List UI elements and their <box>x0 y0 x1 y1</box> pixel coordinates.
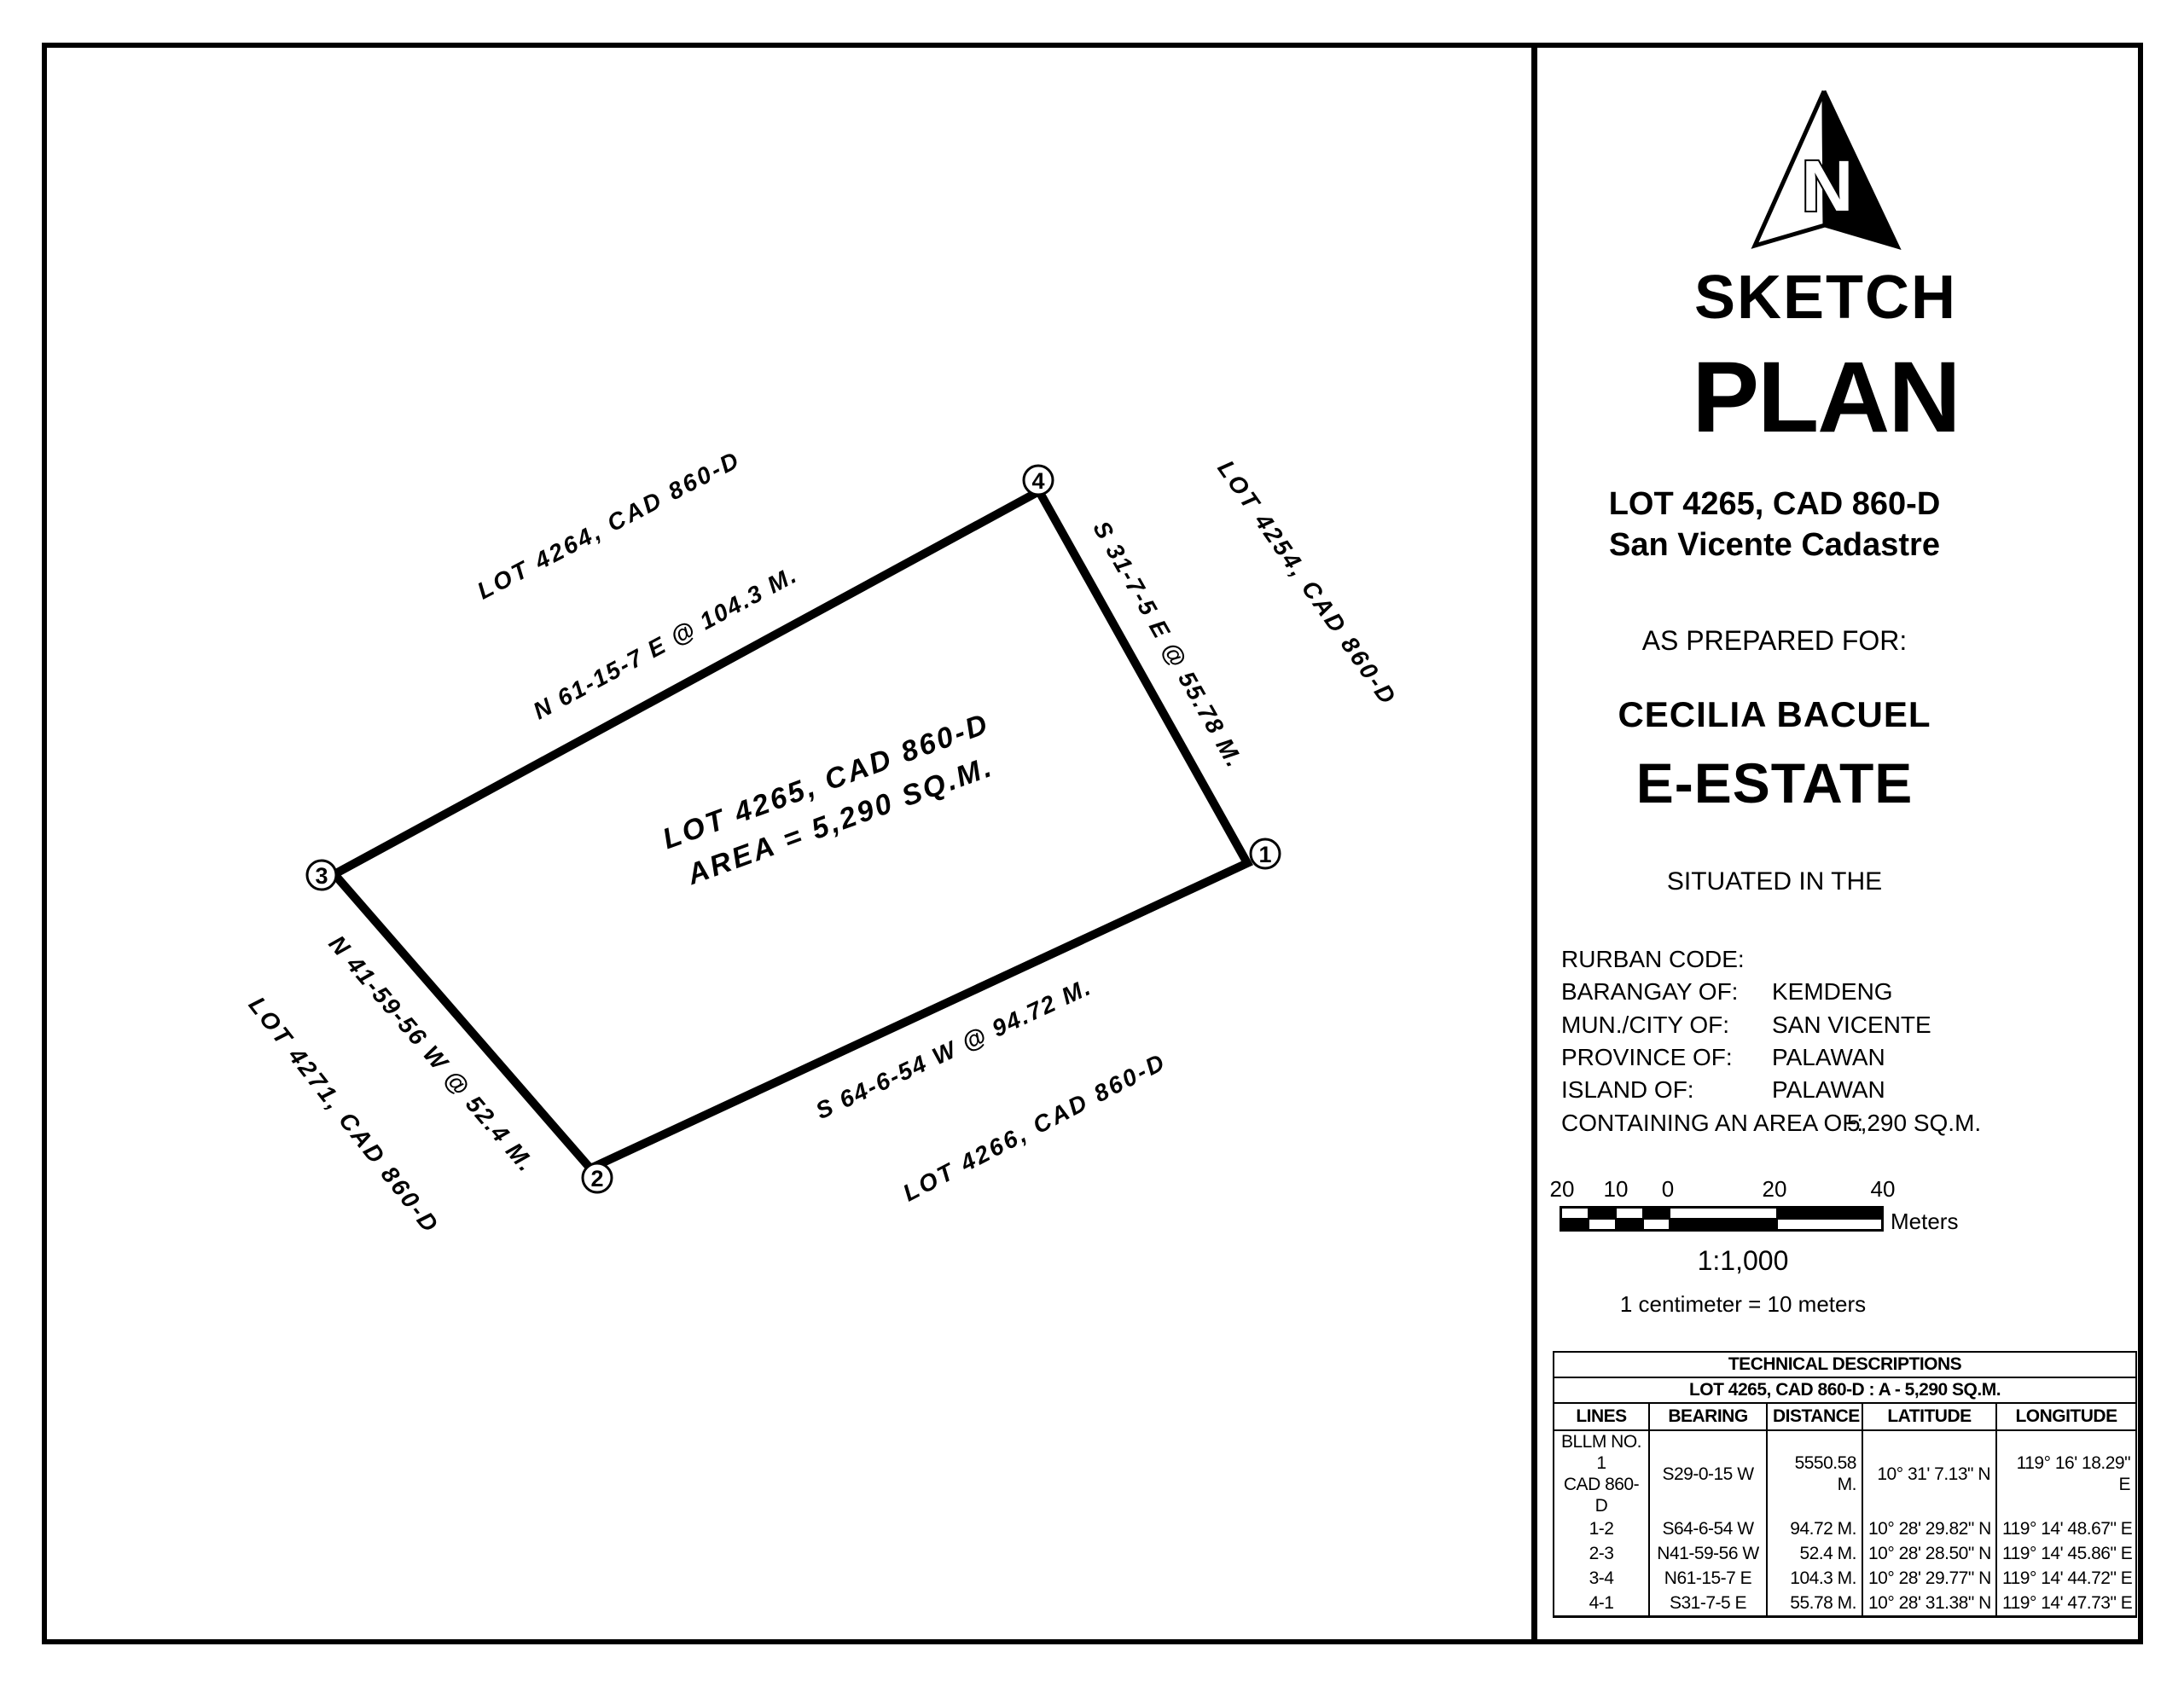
col-header-longitude: LONGITUDE <box>1996 1403 2136 1430</box>
table-row: 2-3 N41-59-56 W 52.4 M. 10° 28' 28.50" N… <box>1554 1541 2136 1566</box>
scale-bar <box>1560 1206 1884 1232</box>
scale-equivalence: 1 centimeter = 10 meters <box>1620 1291 1866 1318</box>
col-header-bearing: BEARING <box>1649 1403 1767 1430</box>
corner-marker-1: 1 <box>1251 839 1280 868</box>
corner-marker-2: 2 <box>583 1163 612 1192</box>
province-label: PROVINCE OF: <box>1561 1041 1733 1074</box>
scale-bar-bottom-row <box>1561 1219 1882 1230</box>
col-header-distance: DISTANCE <box>1767 1403 1862 1430</box>
north-arrow-icon: N <box>1664 77 2005 273</box>
corner-marker-4: 4 <box>1024 466 1053 495</box>
situated-label: SITUATED IN THE <box>1667 867 1882 896</box>
cell-lines: 2-3 <box>1554 1541 1649 1566</box>
cell-distance: 5550.58 M. <box>1767 1430 1862 1516</box>
cell-lines: 1-2 <box>1554 1516 1649 1541</box>
scale-tick-10: 10 <box>1604 1176 1629 1203</box>
island-value: PALAWAN <box>1772 1074 1885 1106</box>
cell-bearing: S64-6-54 W <box>1649 1516 1767 1541</box>
municipality-label: MUN./CITY OF: <box>1561 1009 1729 1041</box>
municipality-value: SAN VICENTE <box>1772 1009 1931 1041</box>
title-cadastre: San Vicente Cadastre <box>1609 527 1940 564</box>
scale-tick-40: 40 <box>1871 1176 1896 1203</box>
cell-bearing: N41-59-56 W <box>1649 1541 1767 1566</box>
client-name: CECILIA BACUEL <box>1618 694 1931 735</box>
prepared-for-label: AS PREPARED FOR: <box>1642 625 1908 657</box>
island-label: ISLAND OF: <box>1561 1074 1694 1106</box>
barangay-label: BARANGAY OF: <box>1561 976 1738 1008</box>
sketch-plan-page: 1 2 3 4 LOT 4265, CAD 860-D AREA = 5,290… <box>0 0 2184 1687</box>
rurban-code-label: RURBAN CODE: <box>1561 943 1745 976</box>
cell-lines: 4-1 <box>1554 1591 1649 1617</box>
province-value: PALAWAN <box>1772 1041 1885 1074</box>
cell-bearing: N61-15-7 E <box>1649 1566 1767 1591</box>
corner-number: 1 <box>1258 842 1271 867</box>
cell-lines: BLLM NO. 1 CAD 860-D <box>1554 1430 1649 1516</box>
cell-longitude: 119° 14' 47.73" E <box>1996 1591 2136 1617</box>
corner-marker-3: 3 <box>307 861 336 890</box>
scale-tick-20-left: 20 <box>1550 1176 1575 1203</box>
north-letter: N <box>1802 146 1854 226</box>
cell-latitude: 10° 28' 28.50" N <box>1862 1541 1996 1566</box>
cell-distance: 104.3 M. <box>1767 1566 1862 1591</box>
cell-distance: 52.4 M. <box>1767 1541 1862 1566</box>
cell-distance: 94.72 M. <box>1767 1516 1862 1541</box>
table-subtitle: LOT 4265, CAD 860-D : A - 5,290 SQ.M. <box>1554 1377 2136 1403</box>
title-lot-number: LOT 4265, CAD 860-D <box>1609 486 1941 523</box>
table-row: 4-1 S31-7-5 E 55.78 M. 10° 28' 31.38" N … <box>1554 1591 2136 1617</box>
area-value: 5,290 SQ.M. <box>1847 1107 1981 1139</box>
cell-lines: 3-4 <box>1554 1566 1649 1591</box>
title-sketch: SKETCH <box>1694 263 1957 333</box>
cell-bearing: S31-7-5 E <box>1649 1591 1767 1617</box>
table-row: BLLM NO. 1 CAD 860-D S29-0-15 W 5550.58 … <box>1554 1430 2136 1516</box>
cell-longitude: 119° 14' 48.67" E <box>1996 1516 2136 1541</box>
scale-ratio: 1:1,000 <box>1698 1245 1789 1277</box>
client-organization: E-ESTATE <box>1636 751 1914 815</box>
panel-divider <box>1531 43 1537 1644</box>
cell-latitude: 10° 28' 29.77" N <box>1862 1566 1996 1591</box>
table-row: 1-2 S64-6-54 W 94.72 M. 10° 28' 29.82" N… <box>1554 1516 2136 1541</box>
col-header-latitude: LATITUDE <box>1862 1403 1996 1430</box>
col-header-lines: LINES <box>1554 1403 1649 1430</box>
corner-number: 2 <box>590 1166 603 1191</box>
cell-latitude: 10° 28' 29.82" N <box>1862 1516 1996 1541</box>
scale-unit-label: Meters <box>1891 1209 1958 1235</box>
cell-latitude: 10° 31' 7.13" N <box>1862 1430 1996 1516</box>
cell-longitude: 119° 16' 18.29" E <box>1996 1430 2136 1516</box>
cell-bearing: S29-0-15 W <box>1649 1430 1767 1516</box>
corner-number: 4 <box>1031 468 1044 494</box>
area-label: CONTAINING AN AREA OF: <box>1561 1107 1863 1139</box>
cell-latitude: 10° 28' 31.38" N <box>1862 1591 1996 1617</box>
title-plan: PLAN <box>1692 339 1959 455</box>
cell-distance: 55.78 M. <box>1767 1591 1862 1617</box>
scale-tick-20-right: 20 <box>1763 1176 1787 1203</box>
technical-descriptions-table: TECHNICAL DESCRIPTIONS LOT 4265, CAD 860… <box>1553 1351 2137 1618</box>
barangay-value: KEMDENG <box>1772 976 1893 1008</box>
table-title: TECHNICAL DESCRIPTIONS <box>1554 1352 2136 1377</box>
cell-longitude: 119° 14' 44.72" E <box>1996 1566 2136 1591</box>
scale-bar-top-row <box>1561 1208 1882 1219</box>
table-row: 3-4 N61-15-7 E 104.3 M. 10° 28' 29.77" N… <box>1554 1566 2136 1591</box>
scale-tick-0: 0 <box>1662 1176 1674 1203</box>
cell-longitude: 119° 14' 45.86" E <box>1996 1541 2136 1566</box>
corner-number: 3 <box>315 863 328 889</box>
